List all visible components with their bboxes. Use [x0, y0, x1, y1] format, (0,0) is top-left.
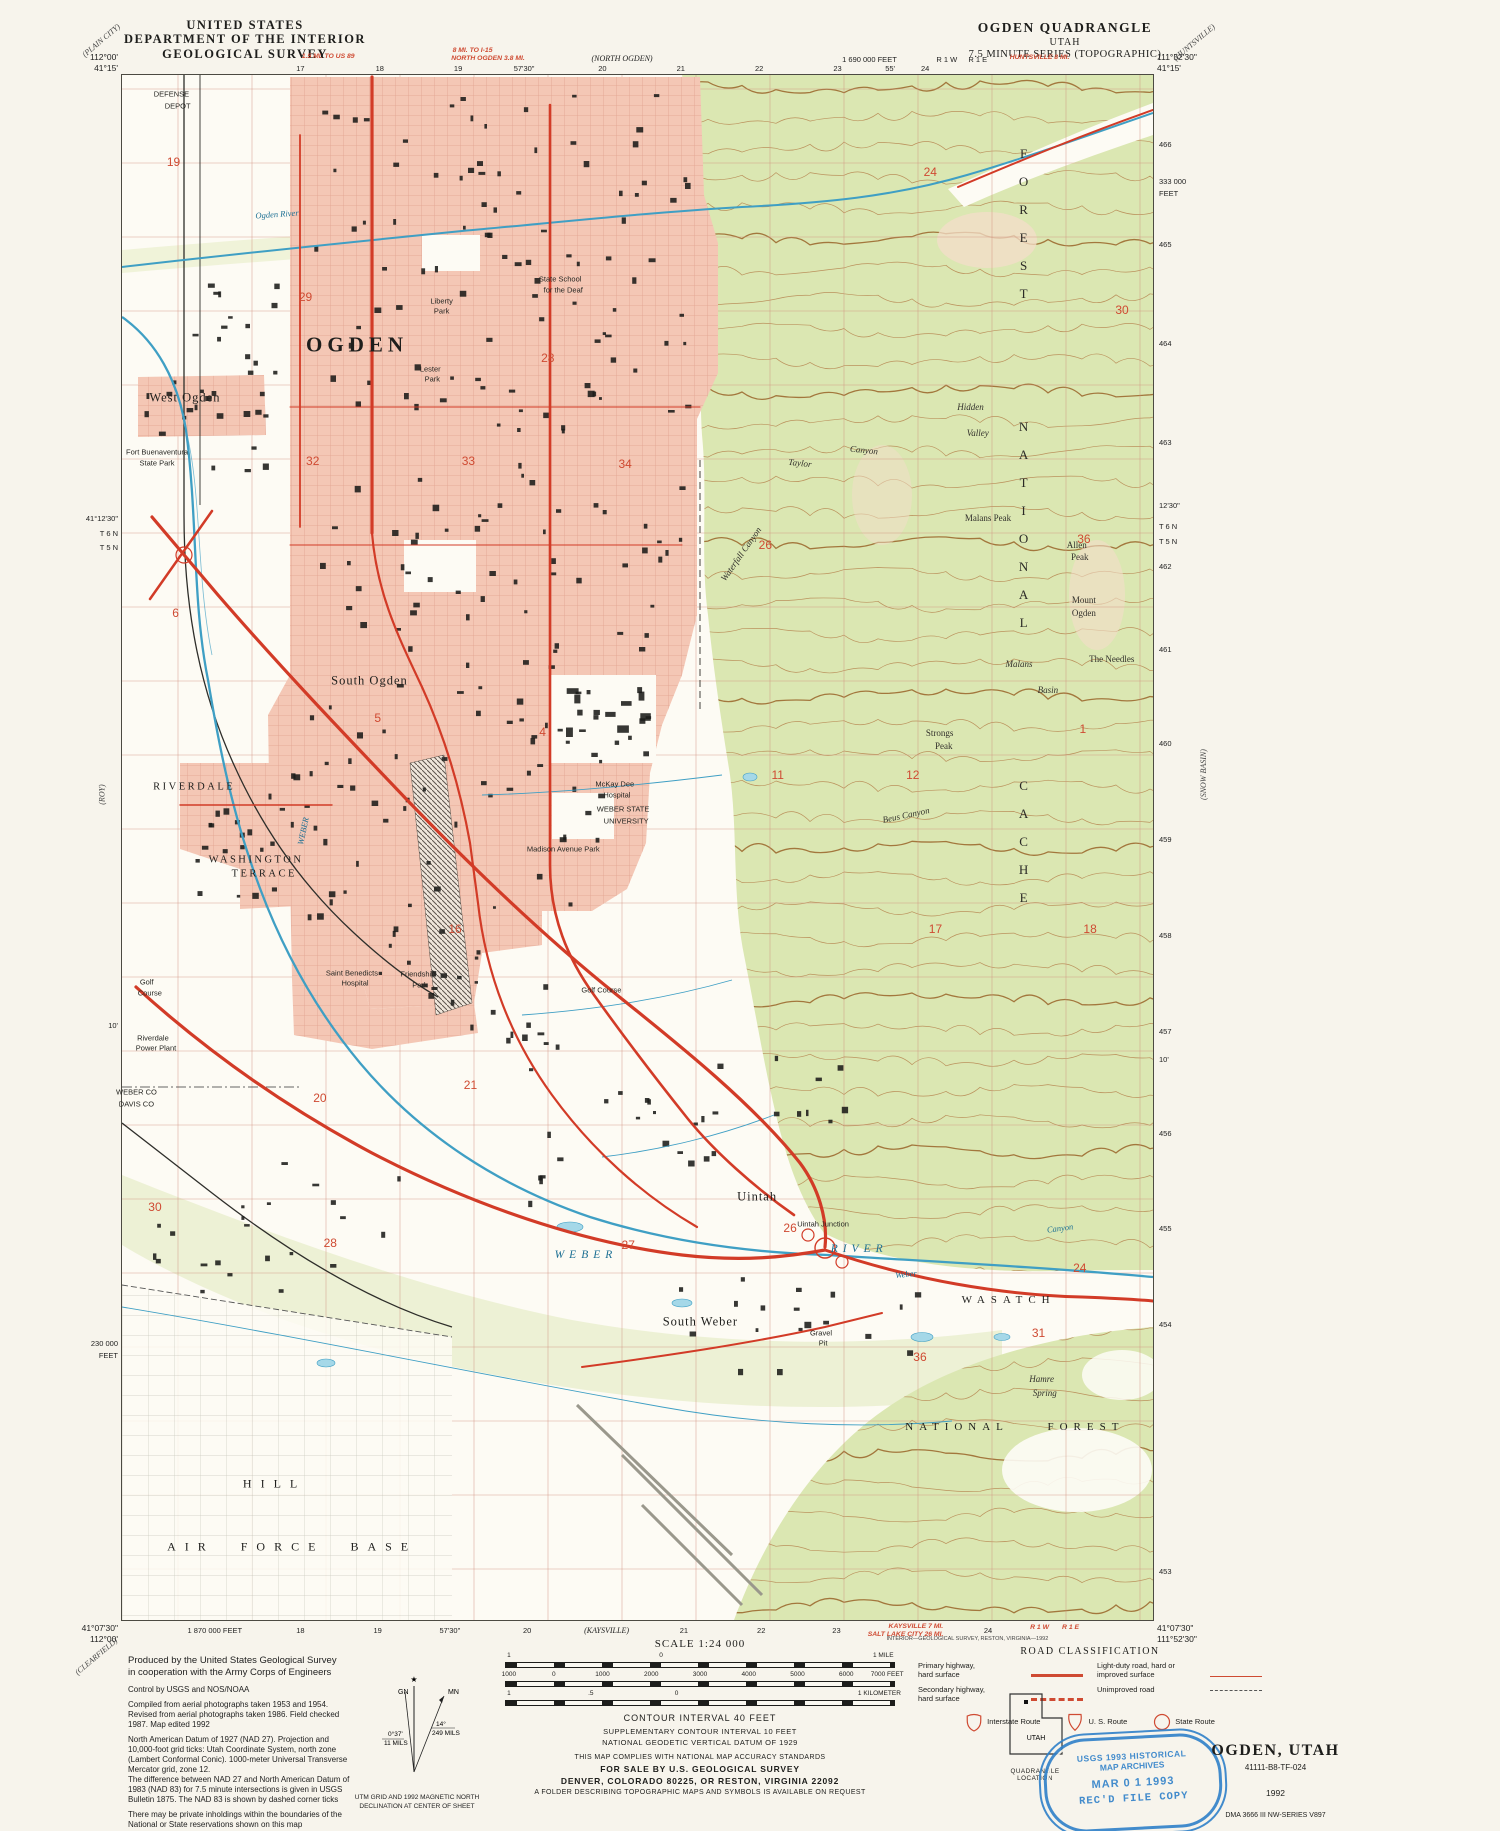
- edge-label: 1 870 000 FEET: [187, 1626, 242, 1635]
- edge-label: 10': [108, 1021, 118, 1030]
- edge-label: 457: [1159, 1027, 1172, 1036]
- scale-bar-kilometers: 1.501 KILOMETER: [505, 1690, 895, 1707]
- edge-label: 459: [1159, 835, 1172, 844]
- accuracy-sale-note: THIS MAP COMPLIES WITH NATIONAL MAP ACCU…: [440, 1753, 960, 1798]
- edge-labels-top: 17181957'30"2021222355'241.5 MI. TO US 8…: [122, 50, 1153, 74]
- scalebar-label: 4000: [742, 1671, 756, 1678]
- magnetic-north-label: MN: [448, 1689, 459, 1696]
- scalebar-label: 1: [507, 1690, 511, 1697]
- corner-coords-bottom-right: 41°07'30" 111°52'30": [1157, 1623, 1237, 1644]
- edge-label: 23: [832, 1626, 840, 1635]
- edge-label: 20: [598, 64, 606, 73]
- edge-label: 57'30": [514, 64, 535, 73]
- road-classification-title: ROAD CLASSIFICATION: [918, 1646, 1262, 1657]
- map-title: OGDEN, UTAH: [1178, 1742, 1373, 1760]
- edge-label: 23: [833, 64, 841, 73]
- edge-label: 456: [1159, 1129, 1172, 1138]
- road-class-swatch-light: [1210, 1676, 1262, 1677]
- edge-label: T 5 N: [100, 543, 118, 552]
- lat-top-left: 41°15': [48, 63, 118, 74]
- vertical-datum: NATIONAL GEODETIC VERTICAL DATUM OF 1929: [505, 1737, 895, 1748]
- corner-coords-top-right: 111°52'30" 41°15': [1157, 52, 1237, 73]
- credit-note: Compiled from aerial photographs taken 1…: [128, 1700, 356, 1730]
- utah-outline: [1010, 1694, 1062, 1754]
- edge-labels-left: 41°12'30"T 6 NT 5 N10'230 000FEET: [84, 75, 120, 1620]
- edge-label: 463: [1159, 438, 1172, 447]
- scale-bar-block: SCALE 1:24 000 101 MILE 1000010002000300…: [505, 1638, 895, 1707]
- map-title-block: OGDEN, UTAH 41111-B8-TF-024 1992 DMA 366…: [1178, 1742, 1373, 1819]
- lon-bottom-right: 111°52'30": [1157, 1634, 1237, 1645]
- lon-top-right: 111°52'30": [1157, 52, 1237, 63]
- edge-label: 19: [454, 64, 462, 73]
- credit-note: North American Datum of 1927 (NAD 27). P…: [128, 1735, 356, 1775]
- edge-label: 1.5 MI. TO US 89: [302, 53, 355, 60]
- quad-title: OGDEN QUADRANGLE: [930, 20, 1200, 36]
- route-shields: Interstate RouteU. S. RouteState Route: [918, 1712, 1262, 1732]
- gn-degrees: 0°37': [388, 1730, 403, 1738]
- edge-label: 21: [680, 1626, 688, 1635]
- true-north-star: ★: [410, 1675, 417, 1684]
- scale-bar-feet: 100001000200030004000500060007000 FEET: [505, 1671, 895, 1688]
- edge-label: (KAYSVILLE): [584, 1626, 629, 1635]
- scalebar-label: 2000: [644, 1671, 658, 1678]
- road-class-row: Primary highway,hard surface: [918, 1661, 1083, 1680]
- edge-label: 8 MI. TO I-15: [453, 47, 493, 54]
- edge-label: 454: [1159, 1320, 1172, 1329]
- scalebar-label: 1000: [595, 1671, 609, 1678]
- edge-label: INTERIOR—GEOLOGICAL SURVEY, RESTON, VIRG…: [887, 1636, 1049, 1642]
- edge-label: 230 000: [91, 1339, 118, 1348]
- edge-label: 464: [1159, 339, 1172, 348]
- gn-mils: 11 MILS: [384, 1740, 408, 1747]
- edge-label: 10': [1159, 1055, 1169, 1064]
- lat-top-right: 41°15': [1157, 63, 1237, 74]
- lat-bottom-left: 41°07'30": [44, 1623, 118, 1634]
- edge-labels-right: 466333 000FEET46546446312'30"T 6 NT 5 N4…: [1156, 75, 1200, 1620]
- sale-line-3: A FOLDER DESCRIBING TOPOGRAPHIC MAPS AND…: [440, 1788, 960, 1798]
- sale-line-2: DENVER, COLORADO 80225, OR RESTON, VIRGI…: [440, 1775, 960, 1787]
- credit-note: in cooperation with the Army Corps of En…: [128, 1667, 356, 1679]
- map-terrain: [122, 75, 1153, 1620]
- adjoining-quad-snow-basin: (SNOW BASIN): [1199, 749, 1208, 800]
- credit-note: Produced by the United States Geological…: [128, 1655, 356, 1667]
- utm-grid-note-2: DECLINATION AT CENTER OF SHEET: [300, 1802, 534, 1811]
- edge-label: T 6 N: [1159, 522, 1177, 531]
- map-year: 1992: [1178, 1788, 1373, 1798]
- grid-north-label: GN: [398, 1689, 409, 1696]
- edge-label: 17: [296, 64, 304, 73]
- edge-label: 18: [296, 1626, 304, 1635]
- sale-line-1: FOR SALE BY U.S. GEOLOGICAL SURVEY: [440, 1763, 960, 1775]
- edge-label: 24: [921, 64, 929, 73]
- edge-label: FEET: [99, 1351, 118, 1360]
- road-class-swatch-unimproved: [1210, 1690, 1262, 1691]
- scalebar-label: 1 MILE: [873, 1652, 894, 1659]
- edge-label: T 6 N: [100, 529, 118, 538]
- contour-interval-note: CONTOUR INTERVAL 40 FEET SUPPLEMENTARY C…: [505, 1712, 895, 1748]
- mn-degrees: 14°: [436, 1720, 446, 1728]
- edge-label: 19: [374, 1626, 382, 1635]
- edge-label: 460: [1159, 739, 1172, 748]
- quad-state: UTAH: [930, 37, 1200, 48]
- scalebar-label: 6000: [839, 1671, 853, 1678]
- edge-label: 466: [1159, 140, 1172, 149]
- edge-label: NORTH OGDEN 3.8 MI.: [451, 55, 525, 62]
- quad-location-dot: [1024, 1700, 1028, 1704]
- scalebar-label: .5: [588, 1690, 593, 1697]
- scale-label: SCALE 1:24 000: [505, 1638, 895, 1650]
- road-class-row: Light-duty road, hard orimproved surface: [1097, 1661, 1262, 1680]
- edge-label: KAYSVILLE 7 MI.: [889, 1623, 944, 1630]
- edge-label: 55': [885, 64, 895, 73]
- scalebar-label: 0: [659, 1652, 663, 1659]
- edge-label: T 5 N: [1159, 537, 1177, 546]
- scalebar-label: 0: [675, 1690, 679, 1697]
- mn-mils: 249 MILS: [432, 1730, 460, 1737]
- edge-label: R 1 E: [1062, 1624, 1079, 1631]
- credit-note: Control by USGS and NOS/NOAA: [128, 1685, 356, 1695]
- credit-note: There may be private inholdings within t…: [128, 1810, 356, 1830]
- edge-label: HUNTSVILLE 8 MI.: [1010, 54, 1070, 61]
- utah-label: UTAH: [1027, 1735, 1046, 1742]
- scalebar-label: 3000: [693, 1671, 707, 1678]
- edge-label: R 1 E: [968, 55, 987, 64]
- lat-bottom-right: 41°07'30": [1157, 1623, 1237, 1634]
- edge-label: R 1 W: [936, 55, 957, 64]
- scalebar-label: 7000 FEET: [871, 1671, 904, 1678]
- scalebar-label: 1: [507, 1652, 511, 1659]
- edge-label: 18: [376, 64, 384, 73]
- route-shield-us: U. S. Route: [1066, 1712, 1127, 1732]
- edge-label: FEET: [1159, 189, 1178, 198]
- accuracy-statement: THIS MAP COMPLIES WITH NATIONAL MAP ACCU…: [440, 1753, 960, 1763]
- edge-label: 21: [677, 64, 685, 73]
- edge-label: 461: [1159, 645, 1172, 654]
- edge-label: 462: [1159, 562, 1172, 571]
- map-area: DEFENSEDEPOTOGDENWest OgdenSouth OgdenRI…: [122, 75, 1153, 1620]
- agency-line-2: DEPARTMENT OF THE INTERIOR: [110, 32, 380, 46]
- road-class-row: Unimproved road: [1097, 1685, 1262, 1694]
- agency-line-1: UNITED STATES: [110, 18, 380, 32]
- scalebar-label: 0: [552, 1671, 556, 1678]
- route-shield-state: State Route: [1153, 1712, 1215, 1732]
- map-code: 41111-B8-TF-024: [1178, 1763, 1373, 1772]
- edge-label: 57'30": [439, 1626, 460, 1635]
- supplementary-contour: SUPPLEMENTARY CONTOUR INTERVAL 10 FEET: [505, 1726, 895, 1737]
- road-class-swatch-primary: [1031, 1674, 1083, 1677]
- edge-label: (NORTH OGDEN): [591, 54, 652, 63]
- scalebar-label: 1 KILOMETER: [858, 1690, 901, 1697]
- edge-label: 24: [984, 1626, 992, 1635]
- edge-label: 453: [1159, 1567, 1172, 1576]
- scale-bar-miles: 101 MILE: [505, 1652, 895, 1669]
- edge-label: 458: [1159, 931, 1172, 940]
- contour-interval: CONTOUR INTERVAL 40 FEET: [505, 1712, 895, 1726]
- dma-series: DMA 3666 III NW-SERIES V897: [1178, 1812, 1373, 1819]
- topo-map-sheet: UNITED STATES DEPARTMENT OF THE INTERIOR…: [0, 0, 1500, 1831]
- edge-label: R 1 W: [1030, 1624, 1049, 1631]
- road-classification-legend: ROAD CLASSIFICATION Primary highway,hard…: [918, 1646, 1262, 1732]
- edge-label: 465: [1159, 240, 1172, 249]
- edge-label: 455: [1159, 1224, 1172, 1233]
- edge-label: 22: [755, 64, 763, 73]
- edge-label: 1 690 000 FEET: [842, 55, 897, 64]
- scalebar-label: 1000: [502, 1671, 516, 1678]
- road-class-column-2: Light-duty road, hard orimproved surface…: [1097, 1661, 1262, 1709]
- scalebar-label: 5000: [790, 1671, 804, 1678]
- edge-label: 12'30": [1159, 501, 1180, 510]
- edge-label: 333 000: [1159, 177, 1186, 186]
- edge-label: 22: [757, 1626, 765, 1635]
- edge-label: 20: [523, 1626, 531, 1635]
- edge-label: 41°12'30": [86, 514, 118, 523]
